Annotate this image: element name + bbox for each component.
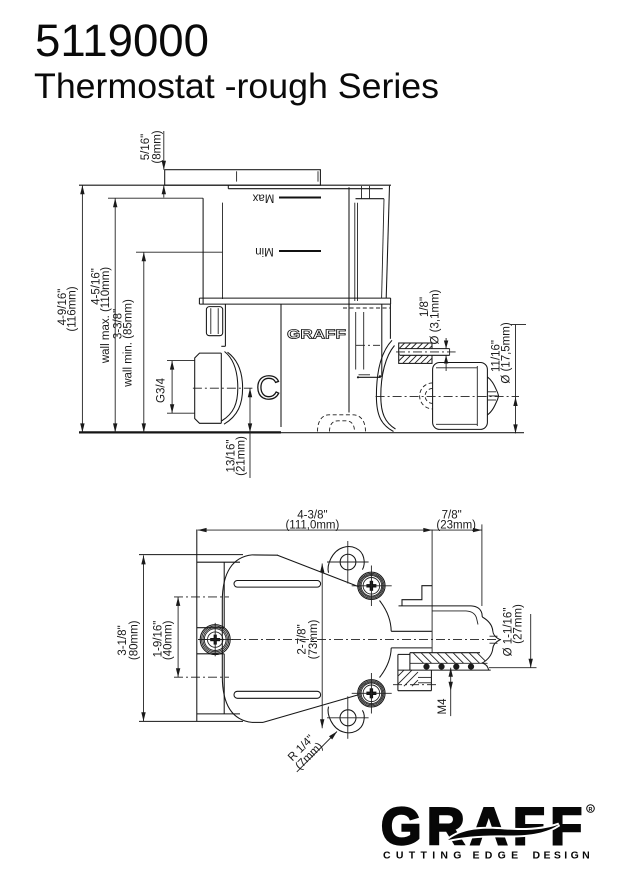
svg-text:CUTTING: CUTTING: [383, 850, 467, 862]
svg-text:(8mm): (8mm): [152, 130, 164, 163]
svg-text:R: R: [589, 807, 593, 813]
svg-text:Ø (3,1mm): Ø (3,1mm): [430, 289, 442, 344]
svg-text:Thermostat -rough Series: Thermostat -rough Series: [34, 67, 439, 106]
svg-text:G3/4: G3/4: [156, 377, 168, 403]
svg-text:(40mm): (40mm): [163, 620, 175, 660]
svg-text:wall min. (85mm): wall min. (85mm): [123, 299, 135, 388]
svg-text:5119000: 5119000: [35, 15, 209, 66]
svg-text:Min: Min: [255, 245, 274, 257]
svg-text:Ø (17,5mm): Ø (17,5mm): [501, 322, 513, 384]
svg-text:(23mm): (23mm): [436, 520, 476, 532]
svg-text:(111,0mm): (111,0mm): [285, 520, 339, 532]
svg-text:DESIGN: DESIGN: [533, 850, 594, 862]
svg-text:(21mm): (21mm): [236, 436, 248, 476]
svg-text:GRAFF: GRAFF: [287, 327, 346, 342]
svg-text:3-1/8": 3-1/8": [117, 625, 129, 655]
svg-text:(27mm): (27mm): [513, 604, 525, 644]
svg-text:M4: M4: [437, 698, 449, 715]
svg-text:(116mm): (116mm): [67, 286, 79, 331]
svg-text:wall max. (110mm): wall max. (110mm): [100, 267, 112, 364]
svg-text:EDGE: EDGE: [473, 850, 524, 862]
svg-text:(80mm): (80mm): [129, 620, 141, 660]
svg-text:Max: Max: [252, 191, 274, 203]
svg-text:5/16": 5/16": [140, 134, 152, 160]
svg-text:C: C: [256, 369, 280, 406]
